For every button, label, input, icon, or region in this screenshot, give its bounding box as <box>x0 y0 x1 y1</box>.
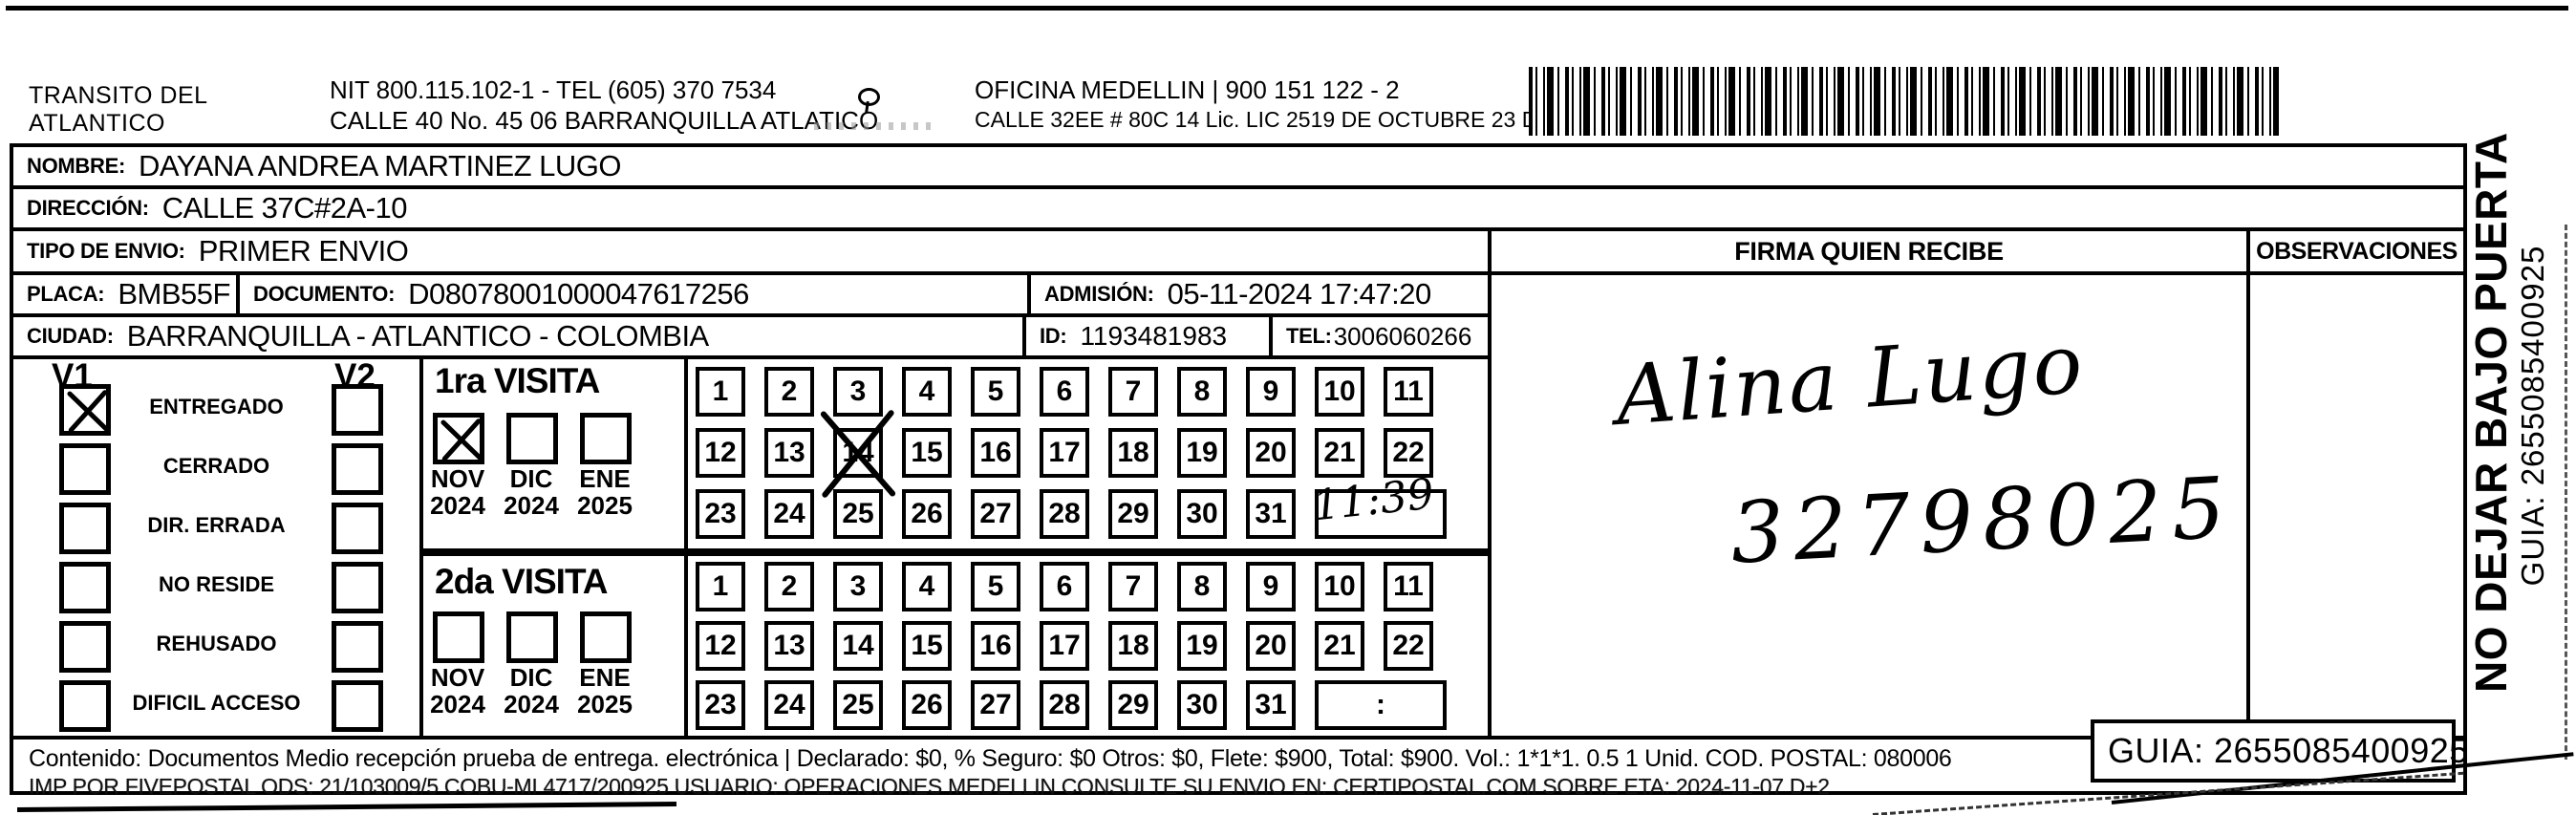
day-box[interactable]: 18 <box>1108 621 1158 671</box>
tel-value: 3006060266 <box>1334 322 1472 352</box>
company-contact-block: NIT 800.115.102-1 - TEL (605) 370 7534 C… <box>330 75 878 136</box>
day-box[interactable]: 6 <box>1040 367 1089 417</box>
month-year-label: 2025 <box>567 690 643 719</box>
month-checkbox-ene[interactable] <box>580 611 632 663</box>
shipment-type-label: TIPO DE ENVIO: <box>27 239 185 264</box>
day-box[interactable]: 29 <box>1108 489 1158 539</box>
day-box[interactable]: 17 <box>1040 621 1089 671</box>
status-option-label: DIR. ERRADA <box>114 513 319 538</box>
office-address-line: CALLE 32EE # 80C 14 Lic. LIC 2519 DE OCT… <box>975 105 1607 134</box>
day-box[interactable]: 26 <box>902 489 952 539</box>
name-label: NOMBRE: <box>27 154 125 179</box>
day-box[interactable]: 7 <box>1108 367 1158 417</box>
day-box[interactable]: 10 <box>1315 367 1364 417</box>
month-checkbox-nov[interactable] <box>433 611 484 663</box>
day-box[interactable]: 30 <box>1177 680 1227 730</box>
day-box[interactable]: 1 <box>696 367 745 417</box>
day-box[interactable]: 12 <box>696 621 745 671</box>
placa-value: BMB55F <box>118 277 230 311</box>
tel-cell: TEL: 3006060266 <box>1269 313 1492 359</box>
day-box[interactable]: 3 <box>833 562 883 611</box>
side-guia-number: GUIA: 2655085400925 <box>2516 139 2550 693</box>
content-summary-line: Contenido: Documentos Medio recepción pr… <box>29 745 1952 773</box>
day-box[interactable]: 23 <box>696 680 745 730</box>
handwritten-signature-phone: 32798025 <box>1728 458 2238 582</box>
second-visit-day-grid: 1234567891011121314151617181920212223242… <box>684 552 1492 740</box>
faded-stamp-smudge <box>814 122 938 130</box>
month-year-label: 2024 <box>419 690 496 719</box>
v1-checkbox-dir-errada[interactable] <box>59 503 111 554</box>
day-box[interactable]: 24 <box>764 680 814 730</box>
placa-cell: PLACA: BMB55F <box>10 271 240 317</box>
handwritten-signature-name: Alina Lugo <box>1613 316 2087 444</box>
id-cell: ID: 1193481983 <box>1022 313 1273 359</box>
company-name-line1: TRANSITO DEL <box>29 82 208 110</box>
month-label: DIC <box>493 663 569 693</box>
admission-label: ADMISIÓN: <box>1044 282 1154 307</box>
id-value: 1193481983 <box>1080 321 1227 352</box>
signature-header-cell: FIRMA QUIEN RECIBE <box>1488 227 2250 275</box>
day-box[interactable]: 27 <box>971 489 1020 539</box>
signature-header: FIRMA QUIEN RECIBE <box>1734 237 2004 267</box>
v1-checkbox-cerrado[interactable] <box>59 443 111 495</box>
day-box[interactable]: 16 <box>971 621 1020 671</box>
day-box[interactable]: 21 <box>1315 428 1364 478</box>
day-box[interactable]: 22 <box>1384 621 1433 671</box>
day-box[interactable]: 4 <box>902 562 952 611</box>
day-box[interactable]: 20 <box>1246 621 1296 671</box>
v2-checkbox-entregado[interactable] <box>332 384 383 436</box>
shipment-type-cell: TIPO DE ENVIO: PRIMER ENVIO <box>10 227 1492 275</box>
v1-checkbox-rehusado[interactable] <box>59 621 111 673</box>
month-label: DIC <box>493 464 569 494</box>
signature-area[interactable]: Alina Lugo 32798025 <box>1488 271 2250 740</box>
status-cell: V1 V2 ENTREGADOCERRADODIR. ERRADANO RESI… <box>10 355 423 740</box>
month-checkbox-ene[interactable] <box>580 413 632 464</box>
day-box[interactable]: 12 <box>696 428 745 478</box>
second-visit-cell: 2da VISITA NOV2024DIC2024ENE2025 <box>419 552 688 740</box>
day-box[interactable]: 19 <box>1177 428 1227 478</box>
paper-edge-dashed-line <box>2565 225 2567 760</box>
day-box[interactable]: 7 <box>1108 562 1158 611</box>
day-box[interactable]: 8 <box>1177 562 1227 611</box>
observations-header: OBSERVACIONES <box>2256 238 2458 266</box>
day-box[interactable]: 4 <box>902 367 952 417</box>
delivery-receipt-scan: TRANSITO DEL ATLANTICO NIT 800.115.102-1… <box>0 0 2576 815</box>
tel-label: TEL: <box>1286 324 1332 349</box>
documento-value: D08078001000047617256 <box>408 277 749 311</box>
placa-label: PLACA: <box>27 282 104 307</box>
address-row: DIRECCIÓN: CALLE 37C#2A-10 <box>10 185 2467 231</box>
documento-label: DOCUMENTO: <box>253 282 395 307</box>
city-cell: CIUDAD: BARRANQUILLA - ATLANTICO - COLOM… <box>10 313 1026 359</box>
month-label: NOV <box>419 464 496 494</box>
v2-checkbox-dir-errada[interactable] <box>332 503 383 554</box>
day-box[interactable]: 28 <box>1040 680 1089 730</box>
guia-number: GUIA: 2655085400925 <box>2108 731 2469 771</box>
observations-header-cell: OBSERVACIONES <box>2246 227 2467 275</box>
month-label: NOV <box>419 663 496 693</box>
status-option-label: DIFICIL ACCESO <box>114 691 319 716</box>
day-box[interactable]: 15 <box>902 621 952 671</box>
day-box[interactable]: 5 <box>971 562 1020 611</box>
day-box[interactable]: 30 <box>1177 489 1227 539</box>
nit-line: NIT 800.115.102-1 - TEL (605) 370 7534 <box>330 75 878 105</box>
name-value: DAYANA ANDREA MARTINEZ LUGO <box>139 149 621 183</box>
company-name-line2: ATLANTICO <box>29 110 208 138</box>
admission-value: 05-11-2024 17:47:20 <box>1168 277 1431 311</box>
day-box[interactable]: 16 <box>971 428 1020 478</box>
v1-checkbox-entregado[interactable] <box>59 384 111 436</box>
month-year-label: 2024 <box>419 491 496 521</box>
barcode <box>1529 67 2279 136</box>
address-label: DIRECCIÓN: <box>27 196 149 221</box>
time-box[interactable]: : <box>1315 680 1447 730</box>
day-box[interactable]: 9 <box>1246 367 1296 417</box>
admission-cell: ADMISIÓN: 05-11-2024 17:47:20 <box>1027 271 1492 317</box>
day-box[interactable]: 25 <box>833 680 883 730</box>
day-box[interactable]: 31 <box>1246 489 1296 539</box>
v2-checkbox-dificil-acceso[interactable] <box>332 680 383 732</box>
day-box[interactable]: 29 <box>1108 680 1158 730</box>
day-box[interactable]: 24 <box>764 489 814 539</box>
month-year-label: 2024 <box>493 690 569 719</box>
city-label: CIUDAD: <box>27 324 114 349</box>
v2-checkbox-rehusado[interactable] <box>332 621 383 673</box>
company-address-line: CALLE 40 No. 45 06 BARRANQUILLA ATLATICO <box>330 105 878 136</box>
day-box[interactable]: 10 <box>1315 562 1364 611</box>
day-box[interactable]: 3 <box>833 367 883 417</box>
day-box[interactable]: 26 <box>902 680 952 730</box>
day-box[interactable]: 31 <box>1246 680 1296 730</box>
day-box[interactable]: 21 <box>1315 621 1364 671</box>
day-box[interactable]: 13 <box>764 621 814 671</box>
id-label: ID: <box>1040 324 1066 349</box>
name-row: NOMBRE: DAYANA ANDREA MARTINEZ LUGO <box>10 143 2467 189</box>
v1-checkbox-no-reside[interactable] <box>59 562 111 613</box>
city-value: BARRANQUILLA - ATLANTICO - COLOMBIA <box>127 319 709 354</box>
month-label: ENE <box>567 464 643 494</box>
company-name: TRANSITO DEL ATLANTICO <box>29 82 208 138</box>
v2-checkbox-cerrado[interactable] <box>332 443 383 495</box>
day-box[interactable]: 2 <box>764 562 814 611</box>
day-box[interactable]: 13 <box>764 428 814 478</box>
day-box[interactable]: 9 <box>1246 562 1296 611</box>
month-year-label: 2025 <box>567 491 643 521</box>
day-box[interactable]: 25 <box>833 489 883 539</box>
office-block: OFICINA MEDELLIN | 900 151 122 - 2 CALLE… <box>975 75 1607 134</box>
status-option-label: REHUSADO <box>114 632 319 656</box>
day-box[interactable]: 18 <box>1108 428 1158 478</box>
day-box[interactable]: 1 <box>696 562 745 611</box>
day-box[interactable]: 28 <box>1040 489 1089 539</box>
fine-print-line: IMP POR FIVEPOSTAL ODS: 21/103009/5 COBU… <box>29 774 1830 800</box>
top-border-line <box>6 6 2568 11</box>
footer-scan-line <box>17 802 676 812</box>
shipment-type-value: PRIMER ENVIO <box>199 234 409 268</box>
do-not-leave-warning: NO DEJAR BAJO PUERTA <box>2468 139 2516 693</box>
address-value: CALLE 37C#2A-10 <box>162 191 407 225</box>
second-visit-title: 2da VISITA <box>435 562 608 602</box>
first-visit-title: 1ra VISITA <box>435 361 599 401</box>
day-box[interactable]: 20 <box>1246 428 1296 478</box>
month-checkbox-dic[interactable] <box>506 611 558 663</box>
status-option-label: NO RESIDE <box>114 572 319 597</box>
day-box[interactable]: 23 <box>696 489 745 539</box>
day-box[interactable]: 8 <box>1177 367 1227 417</box>
day-box[interactable]: 6 <box>1040 562 1089 611</box>
documento-cell: DOCUMENTO: D08078001000047617256 <box>236 271 1031 317</box>
status-option-label: CERRADO <box>114 454 319 479</box>
side-warning-block: NO DEJAR BAJO PUERTA GUIA: 2655085400925 <box>2468 139 2573 693</box>
day-box[interactable]: 15 <box>902 428 952 478</box>
day-box[interactable]: 14 <box>833 621 883 671</box>
month-label: ENE <box>567 663 643 693</box>
month-checkbox-dic[interactable] <box>506 413 558 464</box>
status-option-label: ENTREGADO <box>114 395 319 419</box>
day-box[interactable]: 17 <box>1040 428 1089 478</box>
office-line: OFICINA MEDELLIN | 900 151 122 - 2 <box>975 75 1607 105</box>
day-box[interactable]: 27 <box>971 680 1020 730</box>
month-checkbox-nov[interactable] <box>433 413 484 464</box>
day-box[interactable]: 14 <box>833 428 883 478</box>
day-box[interactable]: 11 <box>1384 367 1433 417</box>
month-year-label: 2024 <box>493 491 569 521</box>
day-box[interactable]: 11 <box>1384 562 1433 611</box>
day-box[interactable]: 2 <box>764 367 814 417</box>
day-box[interactable]: 19 <box>1177 621 1227 671</box>
day-box[interactable]: 5 <box>971 367 1020 417</box>
first-visit-cell: 1ra VISITA NOV2024DIC2024ENE2025 <box>419 355 688 552</box>
observations-area[interactable] <box>2246 271 2467 740</box>
v2-checkbox-no-reside[interactable] <box>332 562 383 613</box>
v1-checkbox-dificil-acceso[interactable] <box>59 680 111 732</box>
first-visit-day-grid: 1234567891011121314151617181920212223242… <box>684 355 1492 552</box>
